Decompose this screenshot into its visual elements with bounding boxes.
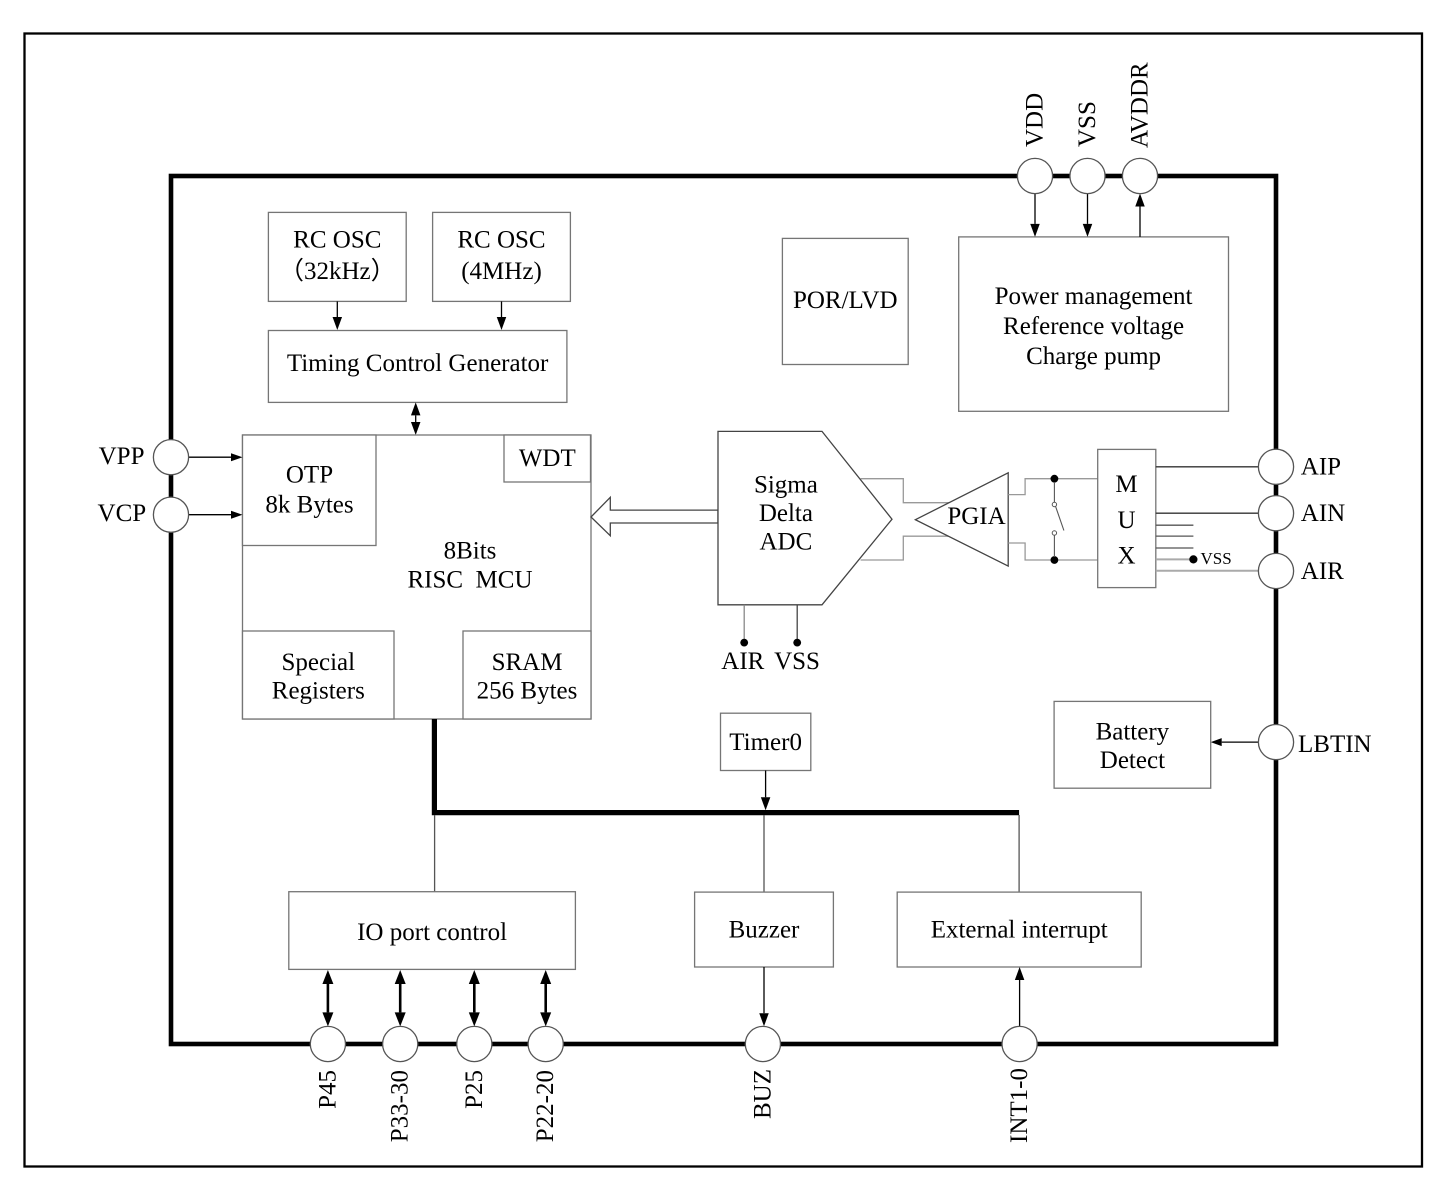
svg-text:OTP: OTP	[286, 462, 333, 489]
svg-text:VSS: VSS	[1074, 101, 1101, 147]
svg-text:ADC: ADC	[760, 529, 813, 556]
svg-text:External interrupt: External interrupt	[931, 916, 1108, 943]
svg-text:AIP: AIP	[1301, 454, 1341, 481]
svg-text:VSS: VSS	[774, 648, 820, 675]
svg-text:Sigma: Sigma	[754, 472, 818, 499]
svg-text:Delta: Delta	[759, 500, 813, 527]
svg-text:Charge pump: Charge pump	[1026, 343, 1161, 370]
svg-text:Reference voltage: Reference voltage	[1003, 313, 1184, 340]
svg-text:Timer0: Timer0	[729, 729, 802, 756]
svg-text:P22-20: P22-20	[532, 1070, 559, 1142]
svg-text:Timing Control Generator: Timing Control Generator	[287, 350, 549, 377]
svg-text:Detect: Detect	[1100, 747, 1165, 774]
svg-text:AIR: AIR	[1301, 558, 1344, 585]
svg-text:RC OSC: RC OSC	[293, 227, 381, 254]
svg-text:VCP: VCP	[98, 500, 147, 527]
svg-text:(4MHz): (4MHz)	[461, 258, 542, 285]
svg-text:PGIA: PGIA	[947, 503, 1005, 530]
svg-text:256 Bytes: 256 Bytes	[477, 678, 578, 705]
svg-text:X: X	[1117, 543, 1135, 570]
svg-text:VDD: VDD	[1022, 93, 1049, 147]
svg-text:P45: P45	[314, 1070, 341, 1109]
svg-text:BUZ: BUZ	[749, 1069, 776, 1119]
svg-text:AVDDR: AVDDR	[1127, 62, 1154, 148]
svg-text:8Bits: 8Bits	[444, 538, 497, 565]
svg-text:AIN: AIN	[1301, 500, 1345, 527]
svg-text:8k Bytes: 8k Bytes	[265, 492, 353, 519]
svg-text:P33-30: P33-30	[387, 1070, 414, 1142]
svg-text:VPP: VPP	[99, 443, 145, 470]
svg-text:（32kHz）: （32kHz）	[279, 257, 396, 285]
svg-text:VSS: VSS	[1201, 549, 1232, 568]
svg-text:IO port control: IO port control	[357, 919, 507, 946]
svg-text:WDT: WDT	[519, 445, 576, 472]
svg-text:Power management: Power management	[995, 283, 1193, 310]
svg-text:U: U	[1117, 507, 1135, 534]
svg-text:AIR: AIR	[721, 648, 764, 675]
svg-text:LBTIN: LBTIN	[1298, 731, 1372, 758]
svg-text:M: M	[1115, 471, 1137, 498]
svg-text:P25: P25	[461, 1070, 488, 1109]
svg-text:Buzzer: Buzzer	[729, 916, 800, 943]
svg-text:SRAM: SRAM	[492, 649, 563, 676]
svg-text:POR/LVD: POR/LVD	[793, 287, 898, 314]
svg-text:Registers: Registers	[272, 678, 365, 705]
svg-text:RISC MCU: RISC MCU	[407, 566, 532, 593]
svg-text:Battery: Battery	[1096, 719, 1170, 746]
svg-text:Special: Special	[282, 649, 356, 676]
svg-text:RC OSC: RC OSC	[457, 227, 545, 254]
svg-text:INT1-0: INT1-0	[1006, 1068, 1033, 1143]
